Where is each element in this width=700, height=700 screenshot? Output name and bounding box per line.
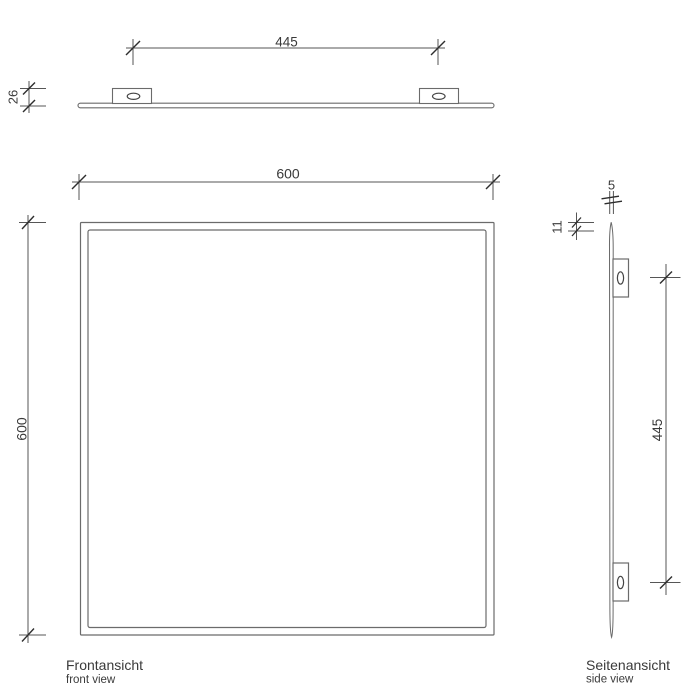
dimension-11-offset: [568, 213, 594, 241]
side-view: [609, 222, 628, 637]
side-view-subtitle: side view: [586, 674, 634, 686]
top-view: [78, 89, 494, 108]
mounting-bracket-right: [420, 89, 459, 104]
front-view: [81, 223, 495, 636]
side-bracket-upper: [613, 259, 629, 297]
side-bracket-lower: [613, 563, 629, 601]
dimension-label-445-top: 445: [275, 35, 298, 50]
drawing-canvas: 445 26 600 600 Frontansicht front view: [0, 0, 700, 700]
front-view-mirror-outer-edge: [81, 223, 495, 636]
dimension-label-26: 26: [6, 90, 21, 104]
dimension-5-thickness: [602, 191, 623, 214]
mounting-bracket-left: [113, 89, 152, 104]
tick-mark: [602, 196, 620, 199]
dimension-label-5: 5: [608, 178, 615, 193]
technical-drawing-page: 445 26 600 600 Frontansicht front view: [0, 0, 700, 700]
dimension-label-600-height: 600: [14, 417, 30, 441]
front-view-title: Frontansicht: [66, 657, 143, 673]
dimension-label-11: 11: [550, 220, 565, 234]
front-view-subtitle: front view: [66, 674, 116, 686]
dimension-label-600-width: 600: [276, 166, 300, 182]
dimension-label-445-side: 445: [650, 419, 665, 442]
dimension-26-top: [20, 81, 46, 113]
side-view-title: Seitenansicht: [586, 657, 670, 673]
